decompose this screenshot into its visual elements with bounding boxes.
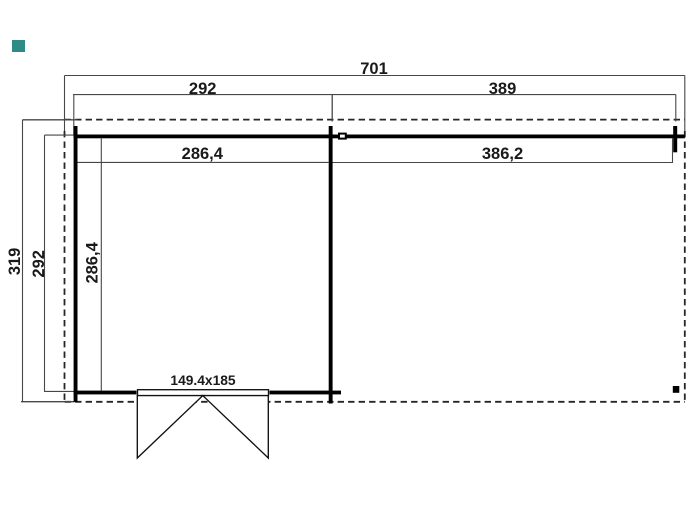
svg-text:292: 292 — [189, 80, 217, 98]
svg-text:292: 292 — [30, 250, 48, 278]
svg-text:386,2: 386,2 — [482, 145, 523, 163]
svg-text:701: 701 — [360, 60, 388, 78]
svg-text:286,4: 286,4 — [182, 145, 224, 163]
svg-text:389: 389 — [489, 80, 517, 98]
svg-text:286,4: 286,4 — [83, 241, 101, 283]
svg-text:319: 319 — [6, 248, 24, 276]
svg-text:149.4x185: 149.4x185 — [170, 373, 236, 388]
